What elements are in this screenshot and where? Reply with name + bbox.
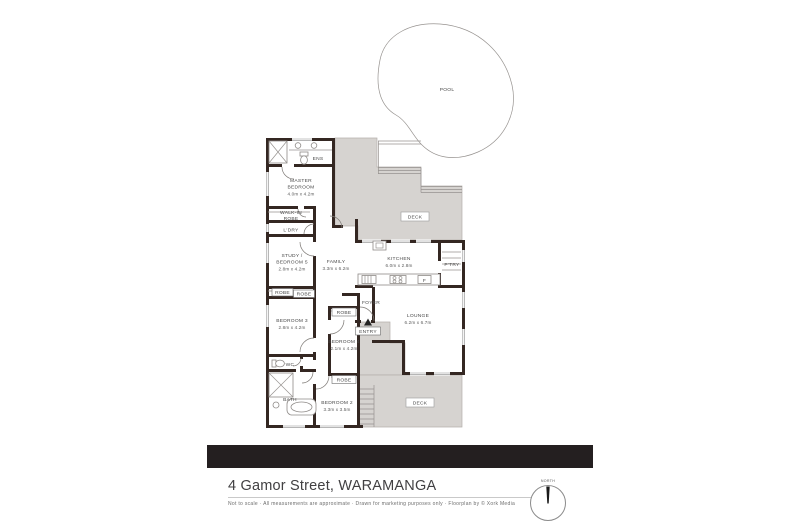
divider-bar bbox=[207, 445, 593, 468]
north-label: NORTH bbox=[541, 479, 555, 483]
cooktop bbox=[390, 276, 406, 284]
floorplan-page: ENS MASTERBEDROOM4.0m x 4.2m WALK-INROBE… bbox=[0, 0, 790, 527]
address-title: 4 Gamor Street, WARAMANGA bbox=[228, 478, 436, 494]
room-label-master-bedroom: MASTERBEDROOM4.0m x 4.2m bbox=[287, 178, 314, 197]
room-label-bath: BATH bbox=[283, 397, 297, 403]
room-label-wc: WC bbox=[286, 362, 295, 368]
dishwasher bbox=[362, 276, 376, 284]
room-label-robe-bedroom2: ROBE bbox=[337, 378, 352, 384]
room-label-foyer: FOYER bbox=[362, 300, 380, 306]
room-label-kitchen: KITCHEN6.0m x 2.8m bbox=[386, 256, 413, 268]
title-divider bbox=[228, 497, 565, 498]
room-label-entry: ENTRY bbox=[359, 329, 377, 335]
area-label-deck-bottom: DECK bbox=[413, 401, 428, 407]
deck-top bbox=[335, 138, 462, 240]
room-label-robe-left: ROBE bbox=[275, 290, 290, 296]
room-label-pantry: P'TRY bbox=[444, 262, 460, 268]
room-label-bedroom4: BEDROOM 42.1m x 4.2m bbox=[328, 339, 360, 351]
ens-toilet bbox=[300, 152, 308, 156]
room-label-lounge: LOUNGE6.2m x 6.7m bbox=[405, 313, 432, 325]
room-label-family: FAMILY3.3m x 6.2m bbox=[323, 259, 350, 271]
area-label-pool: POOL bbox=[440, 87, 455, 93]
area-label-deck-top: DECK bbox=[408, 215, 423, 221]
compass: NORTH bbox=[527, 475, 571, 525]
room-label-study-bedroom5: STUDY /BEDROOM 52.8m x 4.2m bbox=[276, 253, 308, 272]
wall-oven bbox=[373, 241, 386, 250]
footer-disclaimer: Not to scale · All measurements are appr… bbox=[228, 501, 515, 507]
room-label-bedroom3: BEDROOM 32.8m x 4.2m bbox=[276, 318, 308, 330]
fridge-label: F bbox=[423, 278, 426, 284]
room-label-bedroom2: BEDROOM 23.3m x 3.5m bbox=[321, 400, 353, 412]
room-label-robe-right: ROBE bbox=[297, 292, 312, 298]
room-label-robe-bedroom4: ROBE bbox=[337, 310, 352, 316]
room-label-ens: ENS bbox=[313, 156, 324, 162]
room-label-laundry: L'DRY bbox=[283, 228, 299, 234]
bath-basin bbox=[273, 402, 279, 408]
